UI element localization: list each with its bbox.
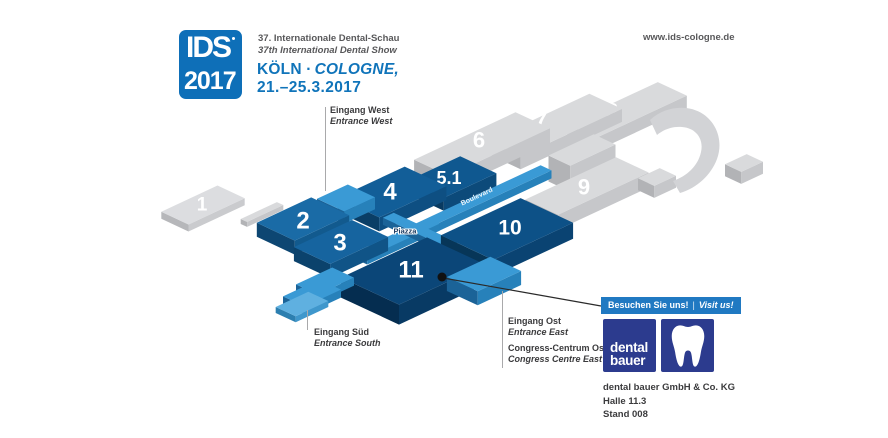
hall-4-number: 4	[383, 179, 397, 206]
hall-2-number: 2	[296, 208, 309, 235]
ids-logo-year: 2017	[184, 67, 236, 96]
exhibition-grounds-map: 876915.14231011PiazzaBoulevard	[0, 0, 888, 438]
badge-separator: |	[693, 300, 695, 310]
entrance-east-leader-line	[502, 291, 503, 368]
hall-11-number: 11	[398, 257, 423, 284]
exhibitor-company: dental bauer GmbH & Co. KG	[603, 381, 735, 395]
exhibitor-hall: Halle 11.3	[603, 395, 735, 409]
entrance-east-label: Eingang Ost Entrance East	[508, 316, 568, 338]
hall-1-number: 1	[197, 195, 208, 216]
website-url: www.ids-cologne.de	[643, 32, 735, 43]
entrance-south-leader-line	[307, 310, 308, 330]
entrance-west-leader-line	[325, 107, 326, 191]
tooth-icon	[668, 323, 708, 369]
stand-location-dot	[438, 273, 447, 282]
visit-us-de: Besuchen Sie uns!	[608, 300, 689, 310]
walkway-label-piazza: Piazza	[394, 227, 418, 236]
exhibitor-info: dental bauer GmbH & Co. KG Halle 11.3 St…	[603, 381, 735, 422]
congress-centre-east-label: Congress-Centrum Ost Congress Centre Eas…	[508, 343, 607, 365]
wordmark-line2: bauer	[610, 355, 648, 368]
entrance-south-label: Eingang Süd Entrance South	[314, 327, 381, 349]
entrance-west-en: Entrance West	[330, 116, 392, 127]
city-line: KÖLN ·COLOGNE,	[257, 61, 399, 79]
city-en: COLOGNE,	[315, 61, 399, 78]
hall-9-number: 9	[578, 175, 590, 200]
visit-us-badge: Besuchen Sie uns!|Visit us!	[601, 297, 741, 314]
ids-logo-text: IDS	[186, 31, 230, 65]
exhibitor-stand: Stand 008	[603, 408, 735, 422]
entrance-south-de: Eingang Süd	[314, 327, 381, 338]
registered-mark-dot	[232, 37, 235, 40]
hall-10-number: 10	[498, 217, 521, 240]
ids-logo: IDS 2017	[179, 30, 242, 99]
ids-2017-hall-plan: 876915.14231011PiazzaBoulevard IDS 2017 …	[0, 0, 888, 438]
entrance-west-label: Eingang West Entrance West	[330, 105, 392, 127]
dental-bauer-wordmark-text: dental bauer	[610, 342, 648, 367]
show-subtitle-de: 37. Internationale Dental-Schau	[258, 33, 399, 44]
show-dates: 21.–25.3.2017	[257, 79, 361, 97]
entrance-east-en: Entrance East	[508, 327, 568, 338]
entrance-west-de: Eingang West	[330, 105, 392, 116]
dental-bauer-tooth-logo	[661, 319, 714, 372]
dental-bauer-wordmark: dental bauer	[603, 319, 656, 372]
hall-6-number: 6	[473, 128, 485, 153]
congress-centre-en: Congress Centre East	[508, 354, 607, 365]
congress-centre-de: Congress-Centrum Ost	[508, 343, 607, 354]
city-de: KÖLN ·	[257, 61, 312, 78]
show-subtitle-en: 37th International Dental Show	[258, 45, 397, 56]
hall-3-number: 3	[333, 230, 346, 257]
visit-us-en: Visit us!	[699, 300, 734, 310]
entrance-east-de: Eingang Ost	[508, 316, 568, 327]
entrance-south-en: Entrance South	[314, 338, 381, 349]
